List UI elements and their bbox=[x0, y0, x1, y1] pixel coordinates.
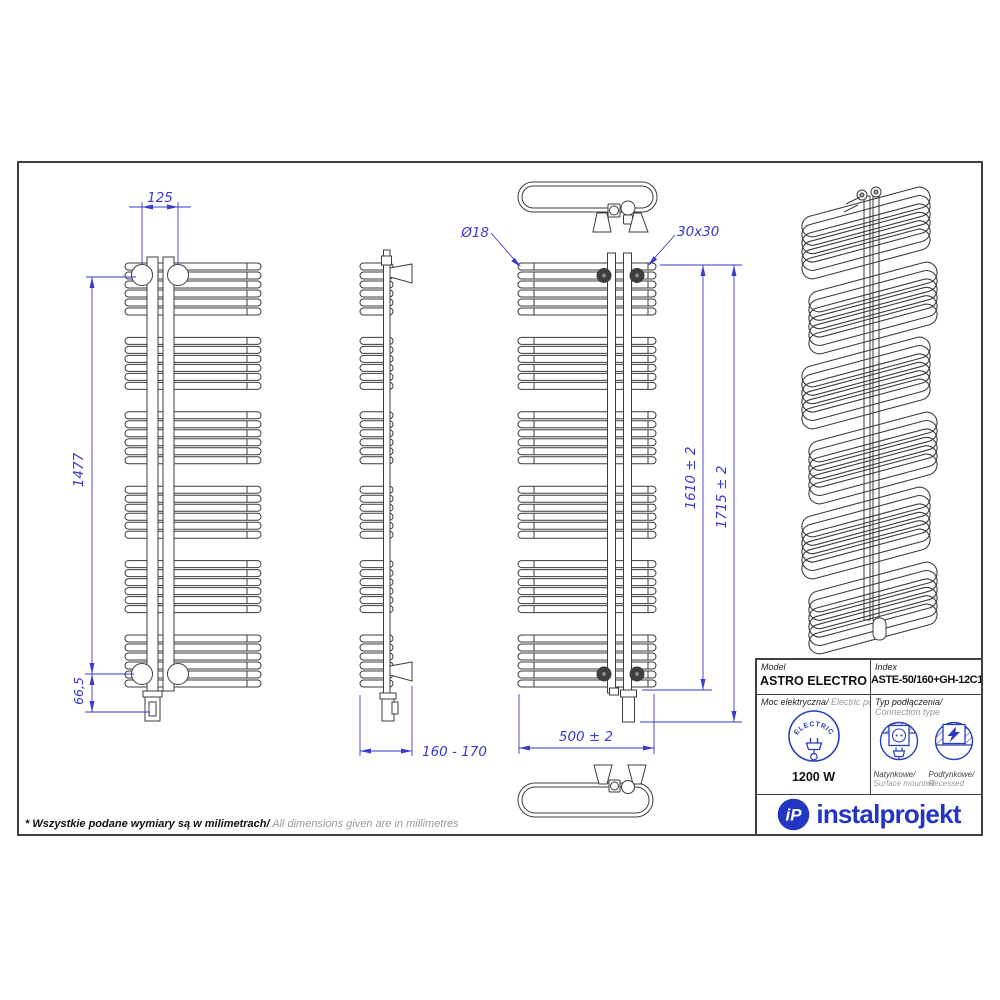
tube bbox=[125, 373, 261, 380]
logo-row: iP instalprojekt bbox=[757, 795, 981, 833]
heater-cable-box bbox=[392, 702, 398, 714]
tube bbox=[518, 495, 656, 502]
surface-mounted-icon bbox=[877, 720, 921, 764]
tube bbox=[518, 635, 656, 642]
tube bbox=[125, 561, 261, 568]
collector-pipe bbox=[147, 257, 158, 691]
dimension-label: 1715 ± 2 bbox=[714, 466, 730, 529]
tube bbox=[125, 513, 261, 520]
tube bbox=[518, 504, 656, 511]
tube bbox=[518, 653, 656, 660]
top-fitting-center bbox=[874, 190, 878, 194]
dimension-label: 125 bbox=[147, 190, 173, 206]
dimension-arrow bbox=[90, 674, 95, 685]
tube bbox=[518, 373, 656, 380]
tube bbox=[125, 430, 261, 437]
mounting-bracket-center bbox=[602, 672, 607, 677]
connection-label: Typ podłączenia/Connection type bbox=[875, 697, 981, 717]
dimension-arrow bbox=[360, 749, 371, 754]
tube bbox=[125, 290, 261, 297]
mounting-hole bbox=[132, 664, 153, 685]
dimension-label: 160 - 170 bbox=[422, 744, 487, 760]
tube bbox=[125, 412, 261, 419]
tube bbox=[518, 448, 656, 455]
tube bbox=[125, 364, 261, 371]
tube bbox=[518, 486, 656, 493]
tube bbox=[518, 606, 656, 613]
dimension-arrow bbox=[732, 711, 737, 722]
footnote-pl: * Wszystkie podane wymiary są w milimetr… bbox=[25, 818, 270, 830]
perspective-view bbox=[800, 185, 940, 656]
model-cell: Model ASTRO ELECTRO bbox=[757, 660, 870, 694]
power-label-en: Electric power bbox=[829, 697, 870, 707]
tube bbox=[518, 412, 656, 419]
power-cell: Moc elektryczna/ Electric power ELECTRIC… bbox=[757, 695, 870, 794]
heater-body bbox=[623, 697, 635, 722]
dimension-label: 30x30 bbox=[677, 224, 719, 240]
dimension-label: 1477 bbox=[71, 452, 87, 487]
side-view bbox=[360, 250, 412, 721]
collector-pipe bbox=[608, 253, 616, 693]
index-label: Index bbox=[875, 662, 981, 672]
tube bbox=[518, 570, 656, 577]
tube bbox=[518, 337, 656, 344]
recessed-icon bbox=[932, 720, 976, 764]
heater-collar bbox=[143, 691, 162, 697]
table-row-power-connection: Moc elektryczna/ Electric power ELECTRIC… bbox=[757, 695, 981, 795]
surface-mounted-label: Natynkowe/Surface mounted bbox=[874, 770, 926, 788]
heater-collar bbox=[380, 693, 396, 699]
tube bbox=[125, 588, 261, 595]
tube bbox=[125, 421, 261, 428]
svg-text:ELECTRIC: ELECTRIC bbox=[793, 721, 835, 737]
model-value: ASTRO ELECTRO bbox=[757, 674, 870, 688]
index-cell: Index ASTE-50/160+GH-12C1 bbox=[870, 660, 981, 694]
tube bbox=[125, 531, 261, 538]
heater-slot bbox=[149, 702, 156, 716]
tube bbox=[125, 355, 261, 362]
dimension-arrow bbox=[732, 265, 737, 276]
connection-label-en: Connection type bbox=[875, 707, 940, 717]
tube bbox=[518, 299, 656, 306]
side-view-dimensions: 160 - 170 bbox=[360, 686, 487, 760]
dimension-arrow bbox=[511, 258, 521, 267]
tube bbox=[518, 579, 656, 586]
dimension-arrow bbox=[643, 746, 654, 751]
instalprojekt-logo-icon: iP bbox=[777, 798, 810, 831]
tube bbox=[518, 290, 656, 297]
footnote-en: All dimensions given are in millimetres bbox=[270, 818, 459, 830]
mounting-bracket-center bbox=[602, 273, 607, 278]
connection-view bbox=[518, 182, 657, 817]
tube bbox=[518, 522, 656, 529]
datasheet-page: 125147766,5160 - 170Ø1830x301610 ± 21715… bbox=[0, 0, 1000, 1000]
logo-monogram: iP bbox=[786, 805, 803, 824]
tube bbox=[125, 439, 261, 446]
mounting-hole bbox=[168, 664, 189, 685]
tube bbox=[518, 644, 656, 651]
tube bbox=[125, 457, 261, 464]
heater-stub bbox=[873, 618, 886, 640]
collector-pipe bbox=[873, 196, 879, 620]
power-value: 1200 W bbox=[757, 770, 870, 784]
technical-drawing: 125147766,5160 - 170Ø1830x301610 ± 21715… bbox=[0, 0, 1000, 1000]
power-label-pl: Moc elektryczna/ bbox=[761, 697, 829, 707]
tube bbox=[125, 653, 261, 660]
surface-mounted-col: Natynkowe/Surface mounted bbox=[872, 720, 926, 788]
tube bbox=[518, 531, 656, 538]
dimension-arrow bbox=[90, 277, 95, 288]
heater-collar bbox=[621, 690, 637, 697]
electric-power-icon: ELECTRIC bbox=[784, 707, 844, 767]
collector-pipe bbox=[163, 257, 174, 691]
tube bbox=[518, 355, 656, 362]
tube bbox=[125, 337, 261, 344]
connection-label-pl: Typ podłączenia/ bbox=[875, 697, 942, 707]
connection-icons: Natynkowe/Surface mounted Podtynkowe/Rec… bbox=[871, 720, 981, 788]
tube bbox=[125, 495, 261, 502]
tube bbox=[125, 308, 261, 315]
dimension-arrow bbox=[519, 746, 530, 751]
recessed-col: Podtynkowe/Recessed bbox=[927, 720, 981, 788]
index-value: ASTE-50/160+GH-12C1 bbox=[871, 674, 981, 686]
instalprojekt-logo-text: instalprojekt bbox=[816, 799, 960, 830]
electric-icon-text: ELECTRIC bbox=[793, 721, 835, 737]
dimension-label: 1610 ± 2 bbox=[683, 447, 699, 510]
tube bbox=[125, 570, 261, 577]
tube bbox=[125, 504, 261, 511]
pipe-cap bbox=[382, 256, 392, 265]
dimensions-footnote: * Wszystkie podane wymiary są w milimetr… bbox=[25, 818, 459, 830]
recessed-label: Podtynkowe/Recessed bbox=[929, 770, 981, 788]
tube bbox=[518, 561, 656, 568]
tube bbox=[125, 448, 261, 455]
socket-face bbox=[610, 206, 619, 215]
collector-pipe bbox=[624, 253, 632, 693]
dimension-label: Ø18 bbox=[460, 225, 489, 241]
dimension-arrow bbox=[701, 265, 706, 276]
tube bbox=[518, 439, 656, 446]
tube bbox=[518, 597, 656, 604]
dimension-arrow bbox=[401, 749, 412, 754]
tube bbox=[518, 430, 656, 437]
tube bbox=[125, 644, 261, 651]
dimension-arrow bbox=[90, 663, 95, 674]
tube bbox=[518, 421, 656, 428]
spec-table: Model ASTRO ELECTRO Index ASTE-50/160+GH… bbox=[755, 658, 983, 836]
dimension-label: 66,5 bbox=[71, 677, 86, 705]
top-fitting-center bbox=[860, 193, 864, 197]
valve-knob bbox=[621, 201, 635, 215]
front-view bbox=[125, 257, 261, 721]
tube bbox=[125, 597, 261, 604]
tube bbox=[125, 606, 261, 613]
model-label: Model bbox=[761, 662, 870, 672]
tube bbox=[125, 382, 261, 389]
collector-pipe bbox=[384, 250, 391, 693]
mounting-hole bbox=[168, 265, 189, 286]
tube bbox=[125, 635, 261, 642]
connection-cell: Typ podłączenia/Connection type bbox=[870, 695, 981, 794]
tube bbox=[518, 364, 656, 371]
dimension-arrow bbox=[90, 701, 95, 712]
mounting-bracket-center bbox=[635, 672, 640, 677]
tube bbox=[518, 382, 656, 389]
tube bbox=[125, 346, 261, 353]
pipe-cap bbox=[610, 688, 619, 695]
tube bbox=[518, 308, 656, 315]
tube bbox=[518, 457, 656, 464]
tube bbox=[125, 522, 261, 529]
mounting-hole bbox=[132, 265, 153, 286]
tube bbox=[125, 486, 261, 493]
dimension-arrow bbox=[701, 679, 706, 690]
valve-knob bbox=[622, 781, 635, 794]
tube bbox=[125, 579, 261, 586]
tube bbox=[125, 299, 261, 306]
tube bbox=[518, 588, 656, 595]
power-label: Moc elektryczna/ Electric power bbox=[761, 697, 870, 707]
table-row-model-index: Model ASTRO ELECTRO Index ASTE-50/160+GH… bbox=[757, 660, 981, 695]
mounting-bracket-center bbox=[635, 273, 640, 278]
tube bbox=[518, 346, 656, 353]
dimension-label: 500 ± 2 bbox=[559, 729, 613, 745]
tube bbox=[518, 513, 656, 520]
socket-face bbox=[611, 782, 619, 790]
